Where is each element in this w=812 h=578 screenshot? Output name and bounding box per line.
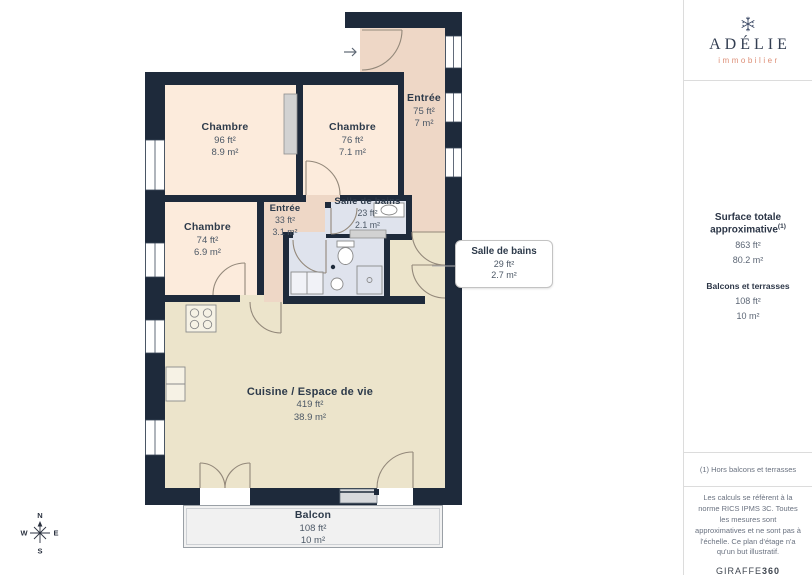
- wall-ch1-ch2: [296, 85, 303, 195]
- door-gap-balcony-right: [377, 488, 413, 505]
- wall-left: [145, 72, 165, 505]
- door-gap-chambre-3: [240, 295, 264, 302]
- room-label-cuisine: Cuisine / Espace de vie 419 ft² 38.9 m²: [230, 385, 390, 424]
- chambre2-m: 7.1 m²: [305, 147, 400, 159]
- room-label-entree-inner: Entrée 33 ft² 3.1 m²: [256, 203, 314, 238]
- wall-bottom: [145, 488, 462, 505]
- entree-top-ft: 75 ft²: [396, 106, 452, 118]
- balconies-ft: 108 ft²: [735, 296, 761, 306]
- balcon-name: Balcon: [184, 509, 442, 523]
- room-label-balcon: Balcon 108 ft² 10 m²: [184, 509, 442, 547]
- sdb1-m: 2.1 m²: [325, 220, 410, 231]
- room-label-chambre-2: Chambre 76 ft² 7.1 m²: [305, 121, 400, 159]
- compass-icon: N S W E: [20, 511, 58, 556]
- room-label-chambre-1: Chambre 96 ft² 8.9 m²: [165, 121, 285, 159]
- room-corridor-strip: [412, 195, 445, 232]
- wall-bathroom2-bottom: [283, 296, 425, 304]
- compass-s: S: [37, 547, 42, 556]
- floor-plan: Balcon 108 ft² 10 m²: [0, 0, 683, 575]
- balcon-m: 10 m²: [184, 535, 442, 547]
- surface-total-footnote-ref: (1): [778, 223, 786, 230]
- room-vestibule-link: [404, 72, 445, 85]
- chambre1-ft: 96 ft²: [165, 135, 285, 147]
- compass-w: W: [20, 529, 28, 538]
- surface-total-title: Surface totale approximative(1): [684, 212, 812, 235]
- disclaimer-section: Les calculs se réfèrent à la norme RICS …: [684, 487, 812, 575]
- chambre1-name: Chambre: [165, 121, 285, 135]
- balconies-m: 10 m²: [736, 311, 759, 321]
- sdb2-ft: 29 ft²: [458, 259, 550, 271]
- callout-salle-de-bains: Salle de bains 29 ft² 2.7 m²: [455, 240, 553, 288]
- cuisine-m: 38.9 m²: [230, 412, 390, 424]
- chambre3-ft: 74 ft²: [160, 235, 255, 247]
- chambre2-ft: 76 ft²: [305, 135, 400, 147]
- sdb1-ft: 23 ft²: [325, 208, 410, 219]
- surface-summary: Surface totale approximative(1) 863 ft² …: [684, 81, 812, 453]
- room-vestibule: [360, 28, 445, 72]
- cuisine-ft: 419 ft²: [230, 399, 390, 411]
- room-balcon: Balcon 108 ft² 10 m²: [183, 505, 443, 548]
- brand-logo: ADÉLIE immobilier: [684, 0, 812, 81]
- disclaimer-text: Les calculs se réfèrent à la norme RICS …: [694, 493, 802, 558]
- giraffe360-logo: GIRAFFE360: [716, 565, 780, 578]
- balcon-ft: 108 ft²: [184, 523, 442, 535]
- cuisine-name: Cuisine / Espace de vie: [230, 385, 390, 399]
- chambre3-m: 6.9 m²: [160, 247, 255, 259]
- room-salle-de-bains-2: [289, 238, 384, 296]
- brand-name: ADÉLIE: [705, 36, 791, 54]
- entree-top-m: 7 m²: [396, 118, 452, 130]
- compass-e: E: [53, 529, 58, 538]
- room-entree-inner-narrow: [264, 232, 283, 302]
- entree-inner-m: 3.1 m²: [256, 227, 314, 238]
- footnote: (1) Hors balcons et terrasses: [684, 453, 812, 487]
- door-gap-balcony-french: [200, 488, 250, 505]
- entree-inner-ft: 33 ft²: [256, 215, 314, 226]
- entree-top-name: Entrée: [396, 92, 452, 106]
- chambre1-m: 8.9 m²: [165, 147, 285, 159]
- sdb2-name: Salle de bains: [458, 246, 550, 259]
- entry-arrow-icon: [344, 48, 356, 56]
- entree-inner-name: Entrée: [256, 203, 314, 215]
- compass-n: N: [37, 511, 42, 520]
- sidebar: ADÉLIE immobilier Surface totale approxi…: [683, 0, 812, 575]
- room-label-chambre-3: Chambre 74 ft² 6.9 m²: [160, 221, 255, 259]
- chambre3-name: Chambre: [160, 221, 255, 235]
- sdb1-name: Salle de bains: [325, 196, 410, 208]
- room-living-notch: [390, 232, 445, 302]
- surface-total-ft: 863 ft²: [735, 240, 761, 250]
- surface-total-m: 80.2 m²: [733, 255, 764, 265]
- chambre2-name: Chambre: [305, 121, 400, 135]
- room-label-entree-top: Entrée 75 ft² 7 m²: [396, 92, 452, 130]
- snowflake-icon: [739, 15, 757, 33]
- surface-total-title-text: Surface totale approximative: [710, 212, 781, 235]
- sdb2-m: 2.7 m²: [458, 270, 550, 282]
- wall-top: [145, 72, 404, 85]
- room-label-sdb1: Salle de bains 23 ft² 2.1 m²: [325, 196, 410, 231]
- brand-tagline: immobilier: [716, 56, 779, 65]
- balconies-label: Balcons et terrasses: [706, 281, 789, 291]
